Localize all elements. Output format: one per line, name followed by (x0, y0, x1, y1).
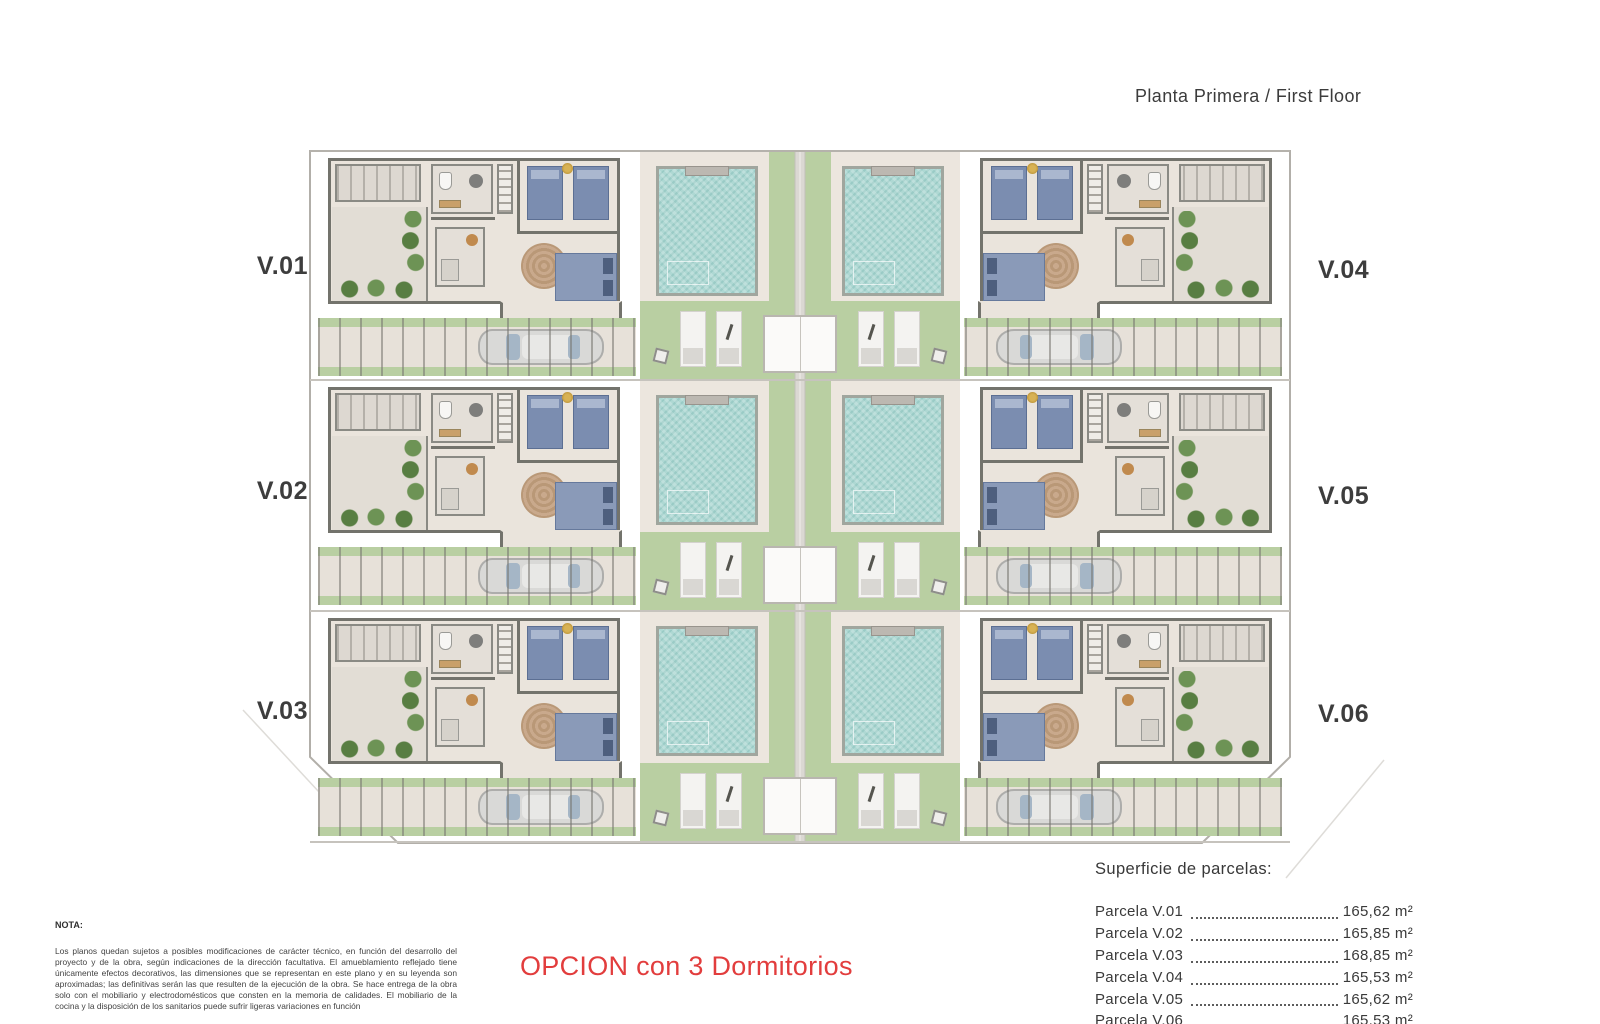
unit-label-v02: V.02 (228, 477, 308, 506)
house-drawing (960, 152, 1290, 379)
pergola-slats (964, 547, 1282, 605)
parcel-area: 165,53 m² (1343, 1010, 1413, 1024)
vanity (439, 429, 461, 437)
shared-terrace-pad (763, 546, 837, 604)
unit-label-v04: V.04 (1318, 256, 1398, 285)
dotted-leader (1191, 1004, 1338, 1006)
twin-bed (1037, 166, 1073, 220)
interior-wall (517, 621, 520, 693)
nightstand (562, 623, 573, 634)
unit-label-v06: V.06 (1318, 700, 1398, 729)
plan-row-2 (310, 381, 1290, 612)
ensuite-bathroom (435, 456, 485, 516)
pergola-slats (964, 778, 1282, 836)
staircase (335, 393, 421, 431)
sun-lounger (858, 542, 884, 598)
interior-wall (1080, 161, 1083, 233)
nota-body: Los planos quedan sujetos a posibles mod… (55, 946, 457, 1012)
interior-wall (1105, 677, 1169, 680)
staircase (335, 624, 421, 662)
toilet (1148, 401, 1161, 419)
carport (964, 318, 1282, 376)
interior-wall (983, 231, 1083, 234)
unit-plan-v05 (960, 381, 1290, 610)
parcel-label: Parcela V.03 (1095, 945, 1183, 967)
double-bed (983, 713, 1045, 761)
double-bed (983, 482, 1045, 530)
ensuite-bathroom (1115, 687, 1165, 747)
wardrobe (497, 624, 513, 674)
legend-row: Parcela V.01 165,62 m² (1095, 901, 1413, 923)
carport (318, 318, 636, 376)
twin-bed (573, 166, 609, 220)
swimming-pool (656, 166, 758, 296)
staircase (1179, 164, 1265, 202)
nota-heading: NOTA: (55, 920, 457, 930)
parcel-legend: Superficie de parcelas: Parcela V.01 165… (1095, 860, 1413, 1024)
toilet (439, 401, 452, 419)
nightstand (1027, 392, 1038, 403)
unit-plan-v06 (960, 612, 1290, 841)
plants (402, 211, 424, 277)
unit-label-v03: V.03 (228, 697, 308, 726)
interior-wall (431, 217, 495, 220)
interior-wall (1105, 217, 1169, 220)
plants (340, 508, 420, 528)
parcel-area: 168,85 m² (1343, 945, 1413, 967)
towel (868, 786, 876, 802)
bathroom (1107, 624, 1169, 674)
toilet (439, 632, 452, 650)
legend-heading: Superficie de parcelas: (1095, 860, 1413, 879)
sun-lounger (680, 773, 706, 829)
ensuite-bathroom (1115, 456, 1165, 516)
house-footprint (328, 158, 620, 304)
terrace (332, 436, 428, 530)
twin-bed (527, 395, 563, 449)
towel (726, 555, 734, 571)
ensuite-bathroom (435, 227, 485, 287)
shared-terrace-pad (763, 315, 837, 373)
house-footprint (980, 387, 1272, 533)
twin-bed (1037, 626, 1073, 680)
unit-label-v05: V.05 (1318, 482, 1398, 511)
staircase (1179, 624, 1265, 662)
sun-lounger (858, 311, 884, 367)
shower (1141, 488, 1159, 510)
sink (466, 234, 478, 246)
wardrobe (1087, 624, 1103, 674)
parcel-label: Parcela V.01 (1095, 901, 1183, 923)
pergola-slats (318, 547, 636, 605)
nightstand (562, 163, 573, 174)
double-bed (555, 713, 617, 761)
dotted-leader (1191, 961, 1338, 963)
swimming-pool (656, 626, 758, 756)
interior-wall (1080, 621, 1083, 693)
twin-bed (573, 395, 609, 449)
towel (726, 324, 734, 340)
swimming-pool (842, 166, 944, 296)
pergola-slats (964, 318, 1282, 376)
double-bed (555, 253, 617, 301)
bathroom (1107, 164, 1169, 214)
parcel-label: Parcela V.02 (1095, 923, 1183, 945)
staircase (1179, 393, 1265, 431)
wardrobe (1087, 164, 1103, 214)
sun-lounger (716, 773, 742, 829)
sheet-title: Planta Primera / First Floor (1135, 86, 1361, 107)
plants (1180, 279, 1260, 299)
terrace (332, 667, 428, 761)
twin-bed (1037, 395, 1073, 449)
swimming-pool (842, 395, 944, 525)
plants (402, 440, 424, 506)
house-drawing (960, 612, 1290, 841)
sink (1122, 463, 1134, 475)
sink (466, 694, 478, 706)
toilet (1148, 632, 1161, 650)
towel (868, 555, 876, 571)
twin-bed (527, 166, 563, 220)
plants (1180, 508, 1260, 528)
sink (1117, 634, 1131, 648)
sink (1122, 234, 1134, 246)
double-bed (555, 482, 617, 530)
carport (964, 547, 1282, 605)
legend-row: Parcela V.06 165,53 m² (1095, 1010, 1413, 1024)
plants (1180, 739, 1260, 759)
interior-wall (431, 446, 495, 449)
house-drawing (310, 612, 640, 841)
unit-plan-v01 (310, 152, 640, 379)
carport (964, 778, 1282, 836)
twin-bed (991, 626, 1027, 680)
sun-lounger (894, 542, 920, 598)
house-drawing (310, 381, 640, 610)
plants (1176, 211, 1198, 277)
house-footprint (328, 618, 620, 764)
sink (466, 463, 478, 475)
sun-lounger (680, 542, 706, 598)
shower (1141, 719, 1159, 741)
interior-wall (1080, 390, 1083, 462)
twin-bed (527, 626, 563, 680)
unit-plan-v02 (310, 381, 640, 610)
plants (402, 671, 424, 737)
carport (318, 547, 636, 605)
dotted-leader (1191, 939, 1338, 941)
shower (441, 488, 459, 510)
sun-lounger (894, 311, 920, 367)
interior-wall (983, 691, 1083, 694)
shared-terrace-pad (763, 777, 837, 835)
bathroom (431, 624, 493, 674)
plants (340, 739, 420, 759)
interior-wall (983, 460, 1083, 463)
plants (340, 279, 420, 299)
bathroom (431, 393, 493, 443)
sun-lounger (894, 773, 920, 829)
sink (469, 634, 483, 648)
sink (1117, 403, 1131, 417)
shared-courtyard-2 (640, 381, 960, 610)
house-footprint (980, 618, 1272, 764)
carport (318, 778, 636, 836)
interior-wall (517, 231, 617, 234)
vanity (1139, 429, 1161, 437)
house-footprint (328, 387, 620, 533)
unit-plan-v03 (310, 612, 640, 841)
towel (726, 786, 734, 802)
sink (1117, 174, 1131, 188)
vanity (1139, 660, 1161, 668)
bathroom (1107, 393, 1169, 443)
wardrobe (497, 164, 513, 214)
parcel-area: 165,85 m² (1343, 923, 1413, 945)
terrace (1172, 207, 1268, 301)
bathroom (431, 164, 493, 214)
vanity (439, 200, 461, 208)
swimming-pool (842, 626, 944, 756)
interior-wall (431, 677, 495, 680)
interior-wall (517, 691, 617, 694)
twin-bed (991, 166, 1027, 220)
swimming-pool (656, 395, 758, 525)
sun-lounger (680, 311, 706, 367)
nightstand (562, 392, 573, 403)
interior-wall (517, 161, 520, 233)
parcel-label: Parcela V.06 (1095, 1010, 1183, 1024)
dotted-leader (1191, 917, 1338, 919)
terrace (332, 207, 428, 301)
legend-row: Parcela V.04 165,53 m² (1095, 967, 1413, 989)
terrace (1172, 667, 1268, 761)
terrace (1172, 436, 1268, 530)
pergola-slats (318, 318, 636, 376)
toilet (1148, 172, 1161, 190)
shower (441, 259, 459, 281)
toilet (439, 172, 452, 190)
house-drawing (310, 152, 640, 379)
interior-wall (1105, 446, 1169, 449)
towel (868, 324, 876, 340)
nota-block: NOTA: Los planos quedan sujetos a posibl… (55, 920, 457, 1012)
interior-wall (517, 390, 520, 462)
parcel-area: 165,62 m² (1343, 901, 1413, 923)
floorplan-sheet: Planta Primera / First Floor (0, 0, 1600, 1024)
house-drawing (960, 381, 1290, 610)
site-plan (310, 150, 1290, 843)
vanity (439, 660, 461, 668)
shared-courtyard-1 (640, 152, 960, 379)
sink (469, 403, 483, 417)
sun-lounger (858, 773, 884, 829)
plan-row-3 (310, 612, 1290, 843)
twin-bed (573, 626, 609, 680)
unit-plan-v04 (960, 152, 1290, 379)
nightstand (1027, 623, 1038, 634)
shared-courtyard-3 (640, 612, 960, 841)
shower (1141, 259, 1159, 281)
ensuite-bathroom (1115, 227, 1165, 287)
double-bed (983, 253, 1045, 301)
legend-row: Parcela V.03 168,85 m² (1095, 945, 1413, 967)
staircase (335, 164, 421, 202)
plants (1176, 671, 1198, 737)
sun-lounger (716, 311, 742, 367)
nightstand (1027, 163, 1038, 174)
pergola-slats (318, 778, 636, 836)
unit-label-v01: V.01 (228, 252, 308, 281)
vanity (1139, 200, 1161, 208)
sun-lounger (716, 542, 742, 598)
sink (469, 174, 483, 188)
parcel-label: Parcela V.05 (1095, 989, 1183, 1011)
wardrobe (497, 393, 513, 443)
parcel-area: 165,62 m² (1343, 989, 1413, 1011)
sink (1122, 694, 1134, 706)
dotted-leader (1191, 983, 1338, 985)
legend-row: Parcela V.02 165,85 m² (1095, 923, 1413, 945)
twin-bed (991, 395, 1027, 449)
wardrobe (1087, 393, 1103, 443)
interior-wall (517, 460, 617, 463)
parcel-area: 165,53 m² (1343, 967, 1413, 989)
shower (441, 719, 459, 741)
plan-row-1 (310, 150, 1290, 381)
plants (1176, 440, 1198, 506)
house-footprint (980, 158, 1272, 304)
legend-row: Parcela V.05 165,62 m² (1095, 989, 1413, 1011)
ensuite-bathroom (435, 687, 485, 747)
parcel-label: Parcela V.04 (1095, 967, 1183, 989)
option-label: OPCION con 3 Dormitorios (520, 951, 853, 982)
